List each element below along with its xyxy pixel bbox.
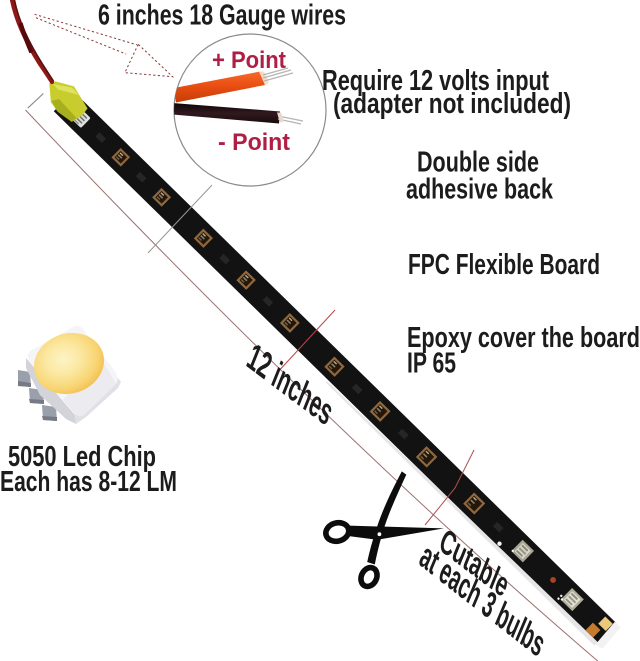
svg-text:+ Point: + Point bbox=[212, 47, 286, 74]
svg-text:- Point: - Point bbox=[218, 129, 290, 156]
svg-text:IP 65: IP 65 bbox=[407, 348, 456, 380]
svg-text:6 inches 18 Gauge wires: 6 inches 18 Gauge wires bbox=[98, 0, 346, 32]
svg-text:Each has 8-12 LM: Each has 8-12 LM bbox=[0, 466, 177, 498]
svg-text:(adapter not included): (adapter not included) bbox=[333, 88, 571, 120]
svg-text:adhesive back: adhesive back bbox=[406, 174, 554, 206]
svg-text:FPC Flexible Board: FPC Flexible Board bbox=[408, 249, 600, 281]
